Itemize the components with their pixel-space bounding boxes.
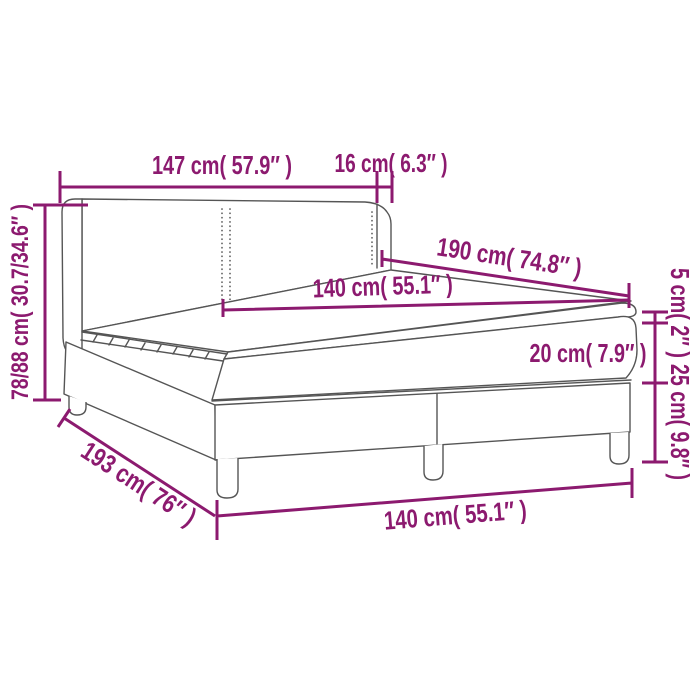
dim-label-headboard-width: 147 cm( 57.9″ )	[152, 150, 292, 180]
dim-base-width-bottom: 140 cm( 55.1″ )	[217, 468, 632, 540]
bed-leg-front-right	[610, 432, 629, 464]
bed-leg-front-left	[217, 458, 238, 498]
dim-label-total-height: 78/88 cm( 30.7/34.6″ )	[7, 204, 34, 400]
dim-label-wing-depth: 16 cm( 6.3″ )	[335, 148, 448, 178]
bed-leg-middle	[424, 444, 443, 480]
dim-wing-depth: 16 cm( 6.3″ )	[335, 148, 448, 203]
dim-label-mattress-height: 20 cm( 7.9″ )	[530, 338, 647, 368]
dim-label-topper-height: 5 cm( 2″ )	[665, 268, 695, 358]
diagram-canvas: 147 cm( 57.9″ ) 16 cm( 6.3″ ) 78/88 cm( …	[0, 0, 700, 700]
bed-dimension-diagram: 147 cm( 57.9″ ) 16 cm( 6.3″ ) 78/88 cm( …	[0, 0, 700, 700]
dim-label-bed-length: 190 cm( 74.8″ )	[435, 231, 584, 282]
headboard-left-wing	[62, 199, 82, 357]
dim-label-base-length: 193 cm( 76″ )	[76, 435, 202, 532]
dim-label-base-height: 25 cm( 9.8″ )	[665, 364, 695, 480]
dim-headboard-width: 147 cm( 57.9″ )	[60, 150, 377, 203]
dim-line-height-bracket	[642, 312, 668, 462]
dim-label-mattress-width-top: 140 cm( 55.1″ )	[312, 269, 453, 304]
